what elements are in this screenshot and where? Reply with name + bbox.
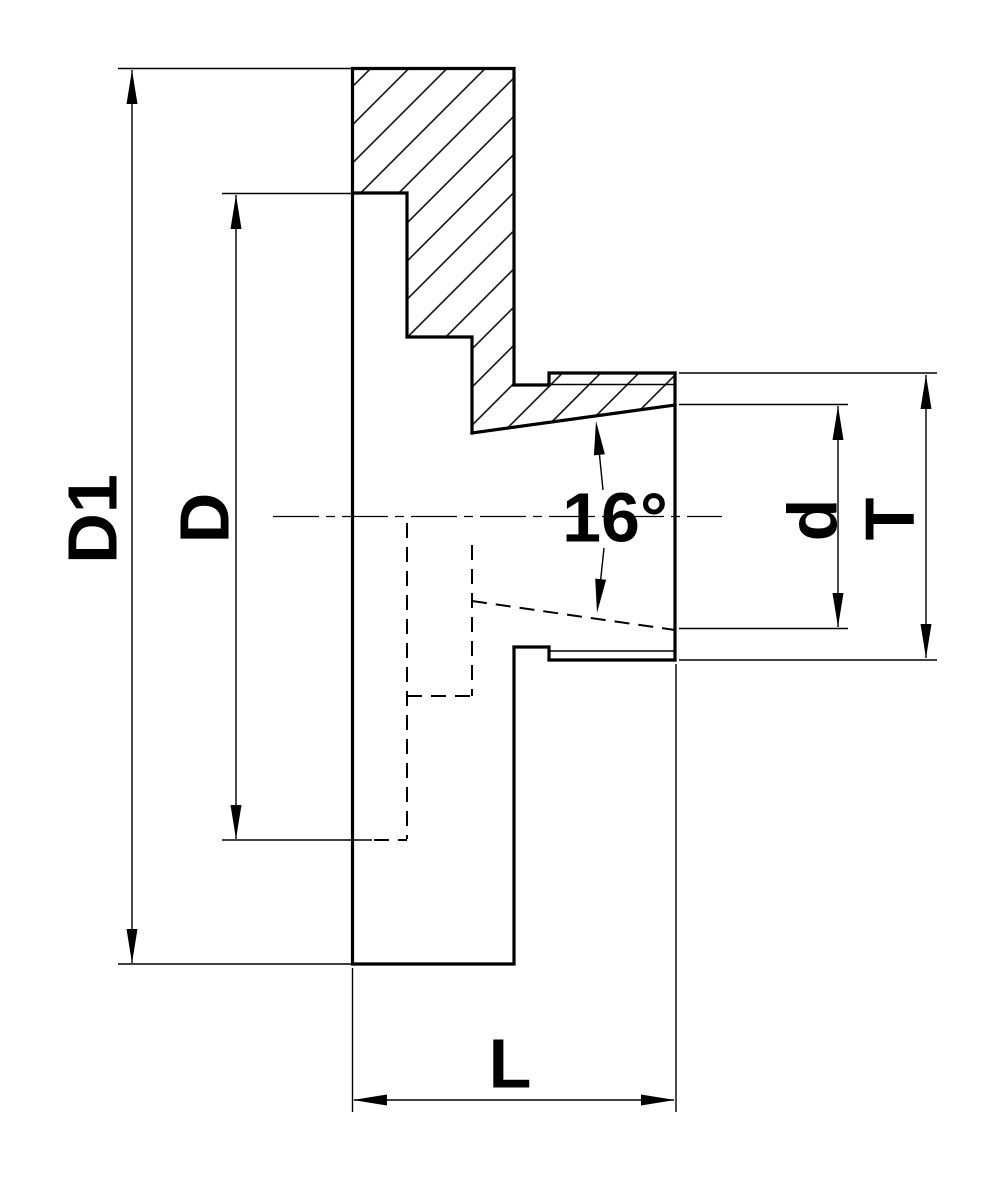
angle-arrow-lower bbox=[595, 579, 606, 613]
dimension-label-t: T bbox=[851, 498, 929, 541]
d-arrow-down bbox=[231, 805, 242, 839]
dimension-label-angle: 16° bbox=[562, 479, 668, 557]
d-arrow-up bbox=[231, 195, 242, 229]
backplate-section-drawing: D1 D d T L 16° bbox=[0, 0, 1000, 1180]
small-d-arrow-up bbox=[833, 406, 844, 440]
dimension-label-l: L bbox=[489, 1025, 532, 1103]
l-arrow-right bbox=[641, 1095, 675, 1106]
t-arrow-down bbox=[921, 624, 932, 658]
l-arrow-left bbox=[353, 1095, 387, 1106]
dimension-label-d: D bbox=[166, 493, 244, 544]
dimension-label-d1: D1 bbox=[54, 474, 132, 563]
angle-arrow-upper bbox=[594, 421, 605, 455]
drawing-page: D1 D d T L 16° bbox=[0, 0, 1000, 1180]
taper-line-lower-hidden bbox=[472, 601, 675, 630]
t-arrow-up bbox=[921, 375, 932, 409]
dimension-label-small-d: d bbox=[774, 499, 852, 542]
d1-arrow-up bbox=[127, 70, 138, 104]
small-d-arrow-down bbox=[833, 593, 844, 627]
nose-lower bbox=[514, 647, 675, 660]
d1-arrow-down bbox=[127, 929, 138, 963]
